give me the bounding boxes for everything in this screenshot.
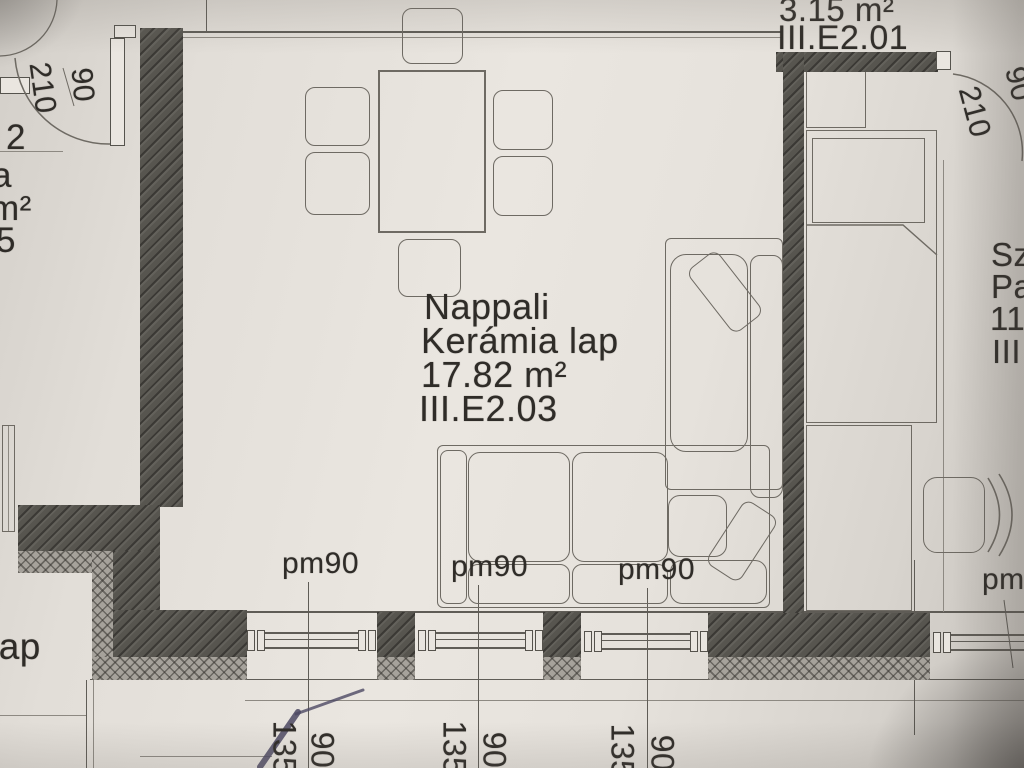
left-door-height: 210 — [22, 60, 63, 116]
parapet-label-partial: pm — [982, 563, 1024, 597]
window-width-dim: 135 — [436, 721, 473, 768]
window-pier-dim: 90 — [304, 732, 341, 768]
parapet-label-1: pm90 — [282, 547, 359, 581]
floor-plan: 3.15 m² III.E2.01 Nappali Kerámia lap 17… — [0, 0, 1024, 768]
right-fragment: III — [992, 333, 1021, 371]
bottom-left-fragment: lap — [0, 626, 41, 668]
left-fragment: 2 — [6, 118, 26, 158]
right-pm-leader — [1004, 600, 1013, 668]
window-width-dim: 135 — [604, 724, 641, 768]
left-fragment: 5 — [0, 221, 16, 261]
desk-chair-back — [988, 478, 1000, 552]
window-pier-dim: 90 — [476, 732, 513, 768]
living-room-id: III.E2.03 — [419, 388, 558, 430]
pen-mark — [296, 690, 363, 714]
desk-chair-back — [999, 474, 1012, 556]
blanket-fold-line — [806, 225, 937, 255]
parapet-label-3: pm90 — [618, 553, 695, 587]
parapet-label-2: pm90 — [451, 550, 528, 584]
hall-id-label: III.E2.01 — [777, 19, 908, 58]
corner-door-arc — [0, 0, 57, 56]
window-pier-dim: 90 — [644, 735, 681, 768]
left-door-width: 90 — [64, 66, 101, 103]
window-width-dim: 135 — [266, 721, 303, 768]
